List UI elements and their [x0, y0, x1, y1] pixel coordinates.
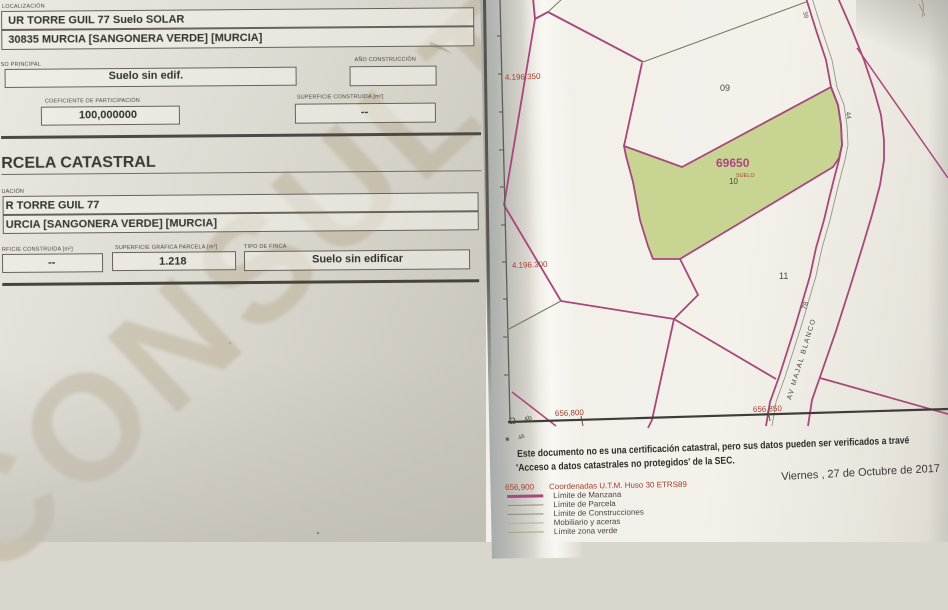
svg-text:11: 11 — [779, 271, 788, 281]
svg-text:4.196.350: 4.196.350 — [505, 72, 541, 82]
svg-text:46: 46 — [517, 433, 526, 442]
svg-text:44: 44 — [844, 111, 852, 120]
svg-text:656,800: 656,800 — [555, 408, 585, 418]
svg-text:4b: 4b — [523, 415, 533, 424]
svg-text:Ω: Ω — [509, 416, 516, 426]
svg-text:78: 78 — [801, 301, 810, 311]
svg-text:4.196.300: 4.196.300 — [512, 260, 548, 270]
svg-text:SUELO: SUELO — [736, 173, 755, 179]
svg-text:⁕: ⁕ — [504, 435, 511, 444]
svg-text:39: 39 — [801, 11, 809, 20]
svg-text:69650: 69650 — [716, 156, 750, 170]
svg-text:656,850: 656,850 — [753, 404, 783, 414]
svg-text:09: 09 — [720, 83, 730, 93]
svg-text:10: 10 — [729, 177, 738, 186]
